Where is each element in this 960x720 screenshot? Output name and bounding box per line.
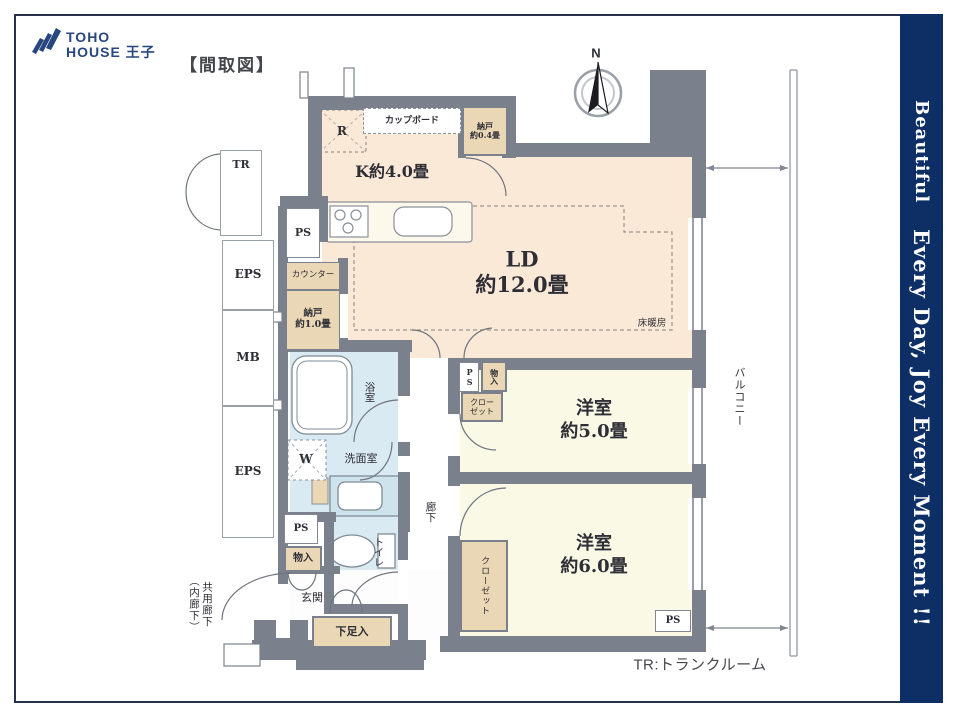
living-dining-label: LD (506, 247, 539, 272)
shoe-cabinet-label: 下足入 (336, 626, 369, 639)
storeroom-1-size: 約1.0畳 (295, 320, 331, 331)
compass-north-label: N (591, 46, 600, 61)
mb-label: MB (236, 351, 259, 365)
living-dining-size: 約12.0畳 (475, 269, 568, 299)
eps-shaft-lower: EPS (222, 406, 274, 538)
closet-label-2: ゼット (470, 407, 494, 416)
dimension-arrowheads (706, 165, 788, 631)
ps-label: PS (295, 227, 311, 240)
storage-box-bedroom5: 物入 (481, 361, 507, 392)
shoe-cabinet-box: 下足入 (312, 616, 392, 648)
counter-box: カウンター (286, 262, 340, 290)
toilet-label: トイレ (370, 537, 385, 567)
balcony-label: バルコニー (731, 367, 747, 427)
cupboard-box: カップボード (363, 108, 461, 134)
ps-box-washroom: PS (284, 514, 318, 544)
balcony-lines (706, 70, 797, 656)
storage-label: 物入 (293, 553, 313, 565)
storage-box-hall: 物入 (284, 546, 322, 572)
washroom-label: 洗面室 (345, 450, 378, 466)
eps-label: EPS (235, 465, 262, 479)
ps-label: PS (464, 367, 473, 387)
bedroom5-size: 約5.0畳 (560, 417, 627, 443)
ps-label: PS (294, 523, 309, 535)
tr-legend-note: TR:トランクルーム (633, 654, 766, 675)
kitchen-label: K約4.0畳 (355, 158, 429, 182)
counter-label: カウンター (292, 271, 335, 281)
floor-plan-sheet: Beautiful Every Day, Joy Every Moment !!… (0, 0, 960, 720)
compass-icon (575, 62, 621, 116)
storeroom-04-size: 約0.4畳 (470, 131, 500, 140)
floor-heating-label: 床暖房 (638, 315, 667, 329)
shared-corridor-label: 共用廊下 （内廊下） (187, 575, 213, 633)
ps-label: PS (666, 615, 681, 627)
shared-corridor-line1: 共用廊下 (200, 575, 213, 633)
fridge-label: R (337, 124, 347, 138)
mb-shaft: MB (222, 310, 274, 406)
ps-box-kitchen: PS (286, 208, 320, 258)
eps-label: EPS (235, 268, 262, 282)
eps-shaft-upper: EPS (222, 240, 274, 310)
bath-label: 浴室 (363, 382, 378, 403)
ps-box-bedroom5: PS (459, 362, 479, 392)
bedroom6-size: 約6.0畳 (560, 552, 627, 578)
entrance-label: 玄関 (301, 589, 323, 605)
hallway-label: 廊下 (424, 502, 439, 523)
closet-label: クローゼット (479, 556, 489, 616)
ps-box-bedroom6: PS (655, 610, 691, 632)
trunk-room-label: TR (232, 159, 249, 172)
trunk-room-box: TR (220, 150, 262, 236)
closet-label-1: クロー (470, 398, 494, 407)
storeroom-1-box: 納戸 約1.0畳 (286, 290, 340, 350)
shared-corridor-line2: （内廊下） (187, 575, 200, 633)
cupboard-label: カップボード (385, 116, 439, 126)
washer-label: W (299, 452, 312, 466)
windows (688, 218, 710, 590)
closet-box-bedroom6: クローゼット (460, 540, 508, 632)
closet-box-bedroom5: クロー ゼット (461, 392, 503, 422)
storeroom-04-box: 納戸 約0.4畳 (462, 106, 508, 156)
storage-label: 物入 (489, 369, 498, 385)
